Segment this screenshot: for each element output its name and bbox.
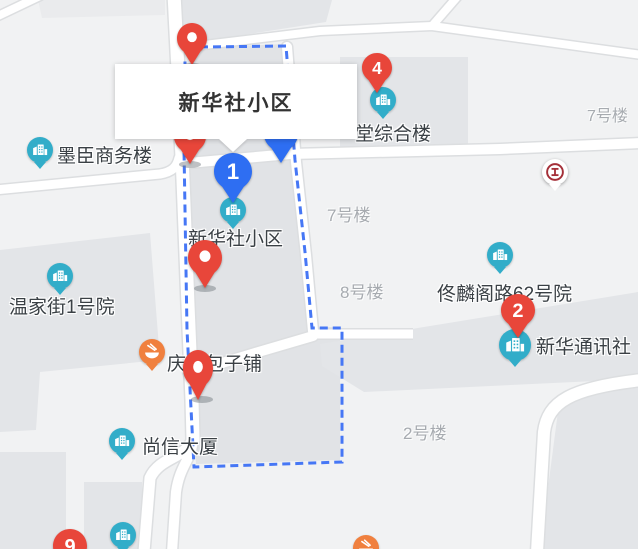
poi-icbc-bank-pointer <box>549 184 561 191</box>
label-shangxin-tower[interactable]: 尚信大厦 <box>142 432 218 459</box>
label-building-7-mid: 7号楼 <box>327 201 370 226</box>
poi-icbc-bank-bubble <box>542 159 568 185</box>
building-icon <box>111 430 133 452</box>
building-icon <box>112 524 134 546</box>
label-building-2: 2号楼 <box>403 419 446 444</box>
poi-wenjiajie-1-pointer <box>54 288 66 295</box>
pin-plain-top[interactable] <box>177 23 207 65</box>
pin-plain-mid[interactable] <box>188 240 222 288</box>
info-popup-pointer <box>219 139 247 152</box>
pin-number-4[interactable]: 4 <box>362 53 392 93</box>
poi-xinhuashe-xiaoqu-pointer <box>227 222 239 229</box>
pin-glyph <box>183 350 213 400</box>
pin-glyph <box>188 240 222 288</box>
label-canteen-complex[interactable]: 堂综合楼 <box>355 119 431 146</box>
food-bowl-icon <box>141 341 163 363</box>
building-icon <box>29 139 51 161</box>
building-icon <box>489 244 511 266</box>
food-bowl-icon <box>355 537 377 549</box>
poi-building-bottom[interactable] <box>110 522 136 548</box>
label-xinhua-news[interactable]: 新华通讯社 <box>536 332 631 359</box>
poi-xinhua-news-pointer <box>509 360 521 367</box>
pin-glyph: 4 <box>362 53 392 93</box>
pin-glyph: 1 <box>214 153 252 203</box>
label-building-8: 8号楼 <box>340 278 383 303</box>
poi-tonglinge-62[interactable] <box>487 242 513 268</box>
poi-canteen-complex-pointer <box>377 112 389 119</box>
icbc-bank-icon <box>544 161 566 183</box>
pin-glyph <box>177 23 207 65</box>
label-qingfeng-baozi[interactable]: 庆丰包子铺 <box>167 349 262 376</box>
poi-icbc-bank[interactable] <box>542 159 568 185</box>
info-popup[interactable]: 新华社小区 <box>115 64 357 139</box>
label-mochen-office[interactable]: 墨臣商务楼 <box>57 141 152 168</box>
svg-text:9: 9 <box>64 536 75 549</box>
svg-text:2: 2 <box>512 300 523 322</box>
poi-mochen-office-bubble <box>27 137 53 163</box>
poi-mochen-office-pointer <box>34 162 46 169</box>
poi-shangxin-tower-pointer <box>116 453 128 460</box>
pin-glyph: 9 <box>53 529 87 549</box>
poi-qingfeng-baozi-bubble <box>139 339 165 365</box>
pin-number-9[interactable]: 9 <box>53 529 87 549</box>
poi-food-bottom[interactable] <box>353 535 379 549</box>
svg-text:1: 1 <box>227 159 239 184</box>
pin-number-1[interactable]: 1 <box>214 153 252 203</box>
poi-qingfeng-baozi-pointer <box>146 364 158 371</box>
label-building-7-ne: 7号楼 <box>587 102 628 126</box>
poi-building-bottom-bubble <box>110 522 136 548</box>
poi-shangxin-tower-bubble <box>109 428 135 454</box>
map-canvas[interactable]: 墨臣商务楼温家街1号院新华社小区堂综合楼佟麟阁路62号院新华通讯社尚信大厦庆丰包… <box>0 0 638 549</box>
poi-wenjiajie-1-bubble <box>47 263 73 289</box>
label-wenjiajie-1[interactable]: 温家街1号院 <box>9 292 115 319</box>
poi-wenjiajie-1[interactable] <box>47 263 73 289</box>
poi-qingfeng-baozi[interactable] <box>139 339 165 365</box>
poi-tonglinge-62-pointer <box>494 267 506 274</box>
pin-number-2[interactable]: 2 <box>501 294 535 338</box>
pin-glyph: 2 <box>501 294 535 338</box>
pin-plain-baozi[interactable] <box>183 350 213 400</box>
poi-shangxin-tower[interactable] <box>109 428 135 454</box>
building-icon <box>49 265 71 287</box>
poi-food-bottom-bubble <box>353 535 379 549</box>
poi-mochen-office[interactable] <box>27 137 53 163</box>
poi-tonglinge-62-bubble <box>487 242 513 268</box>
svg-text:4: 4 <box>372 58 382 78</box>
info-popup-title: 新华社小区 <box>179 87 294 117</box>
